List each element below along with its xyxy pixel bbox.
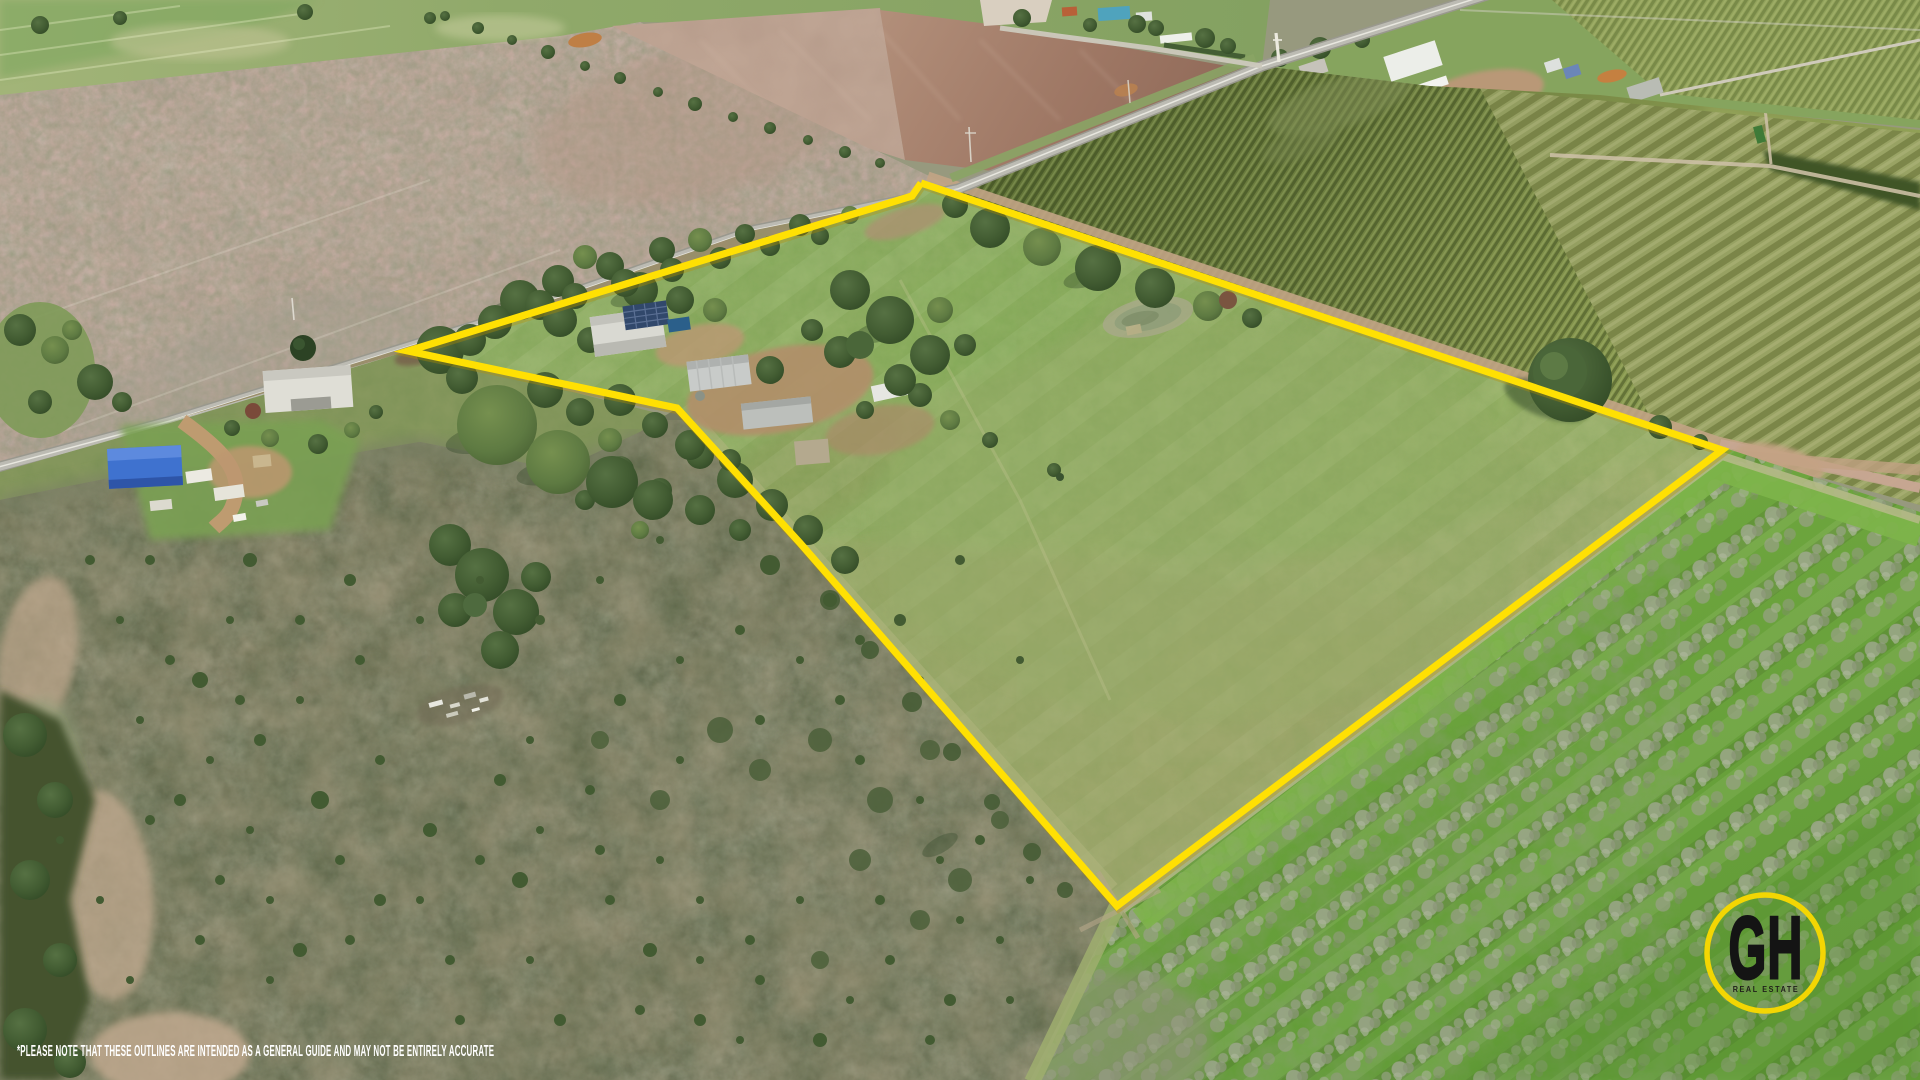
svg-text:GH: GH	[1729, 900, 1804, 998]
svg-text:*PLEASE NOTE THAT THESE OUTLIN: *PLEASE NOTE THAT THESE OUTLINES ARE INT…	[17, 1042, 494, 1060]
svg-text:REAL ESTATE: REAL ESTATE	[1733, 985, 1800, 994]
